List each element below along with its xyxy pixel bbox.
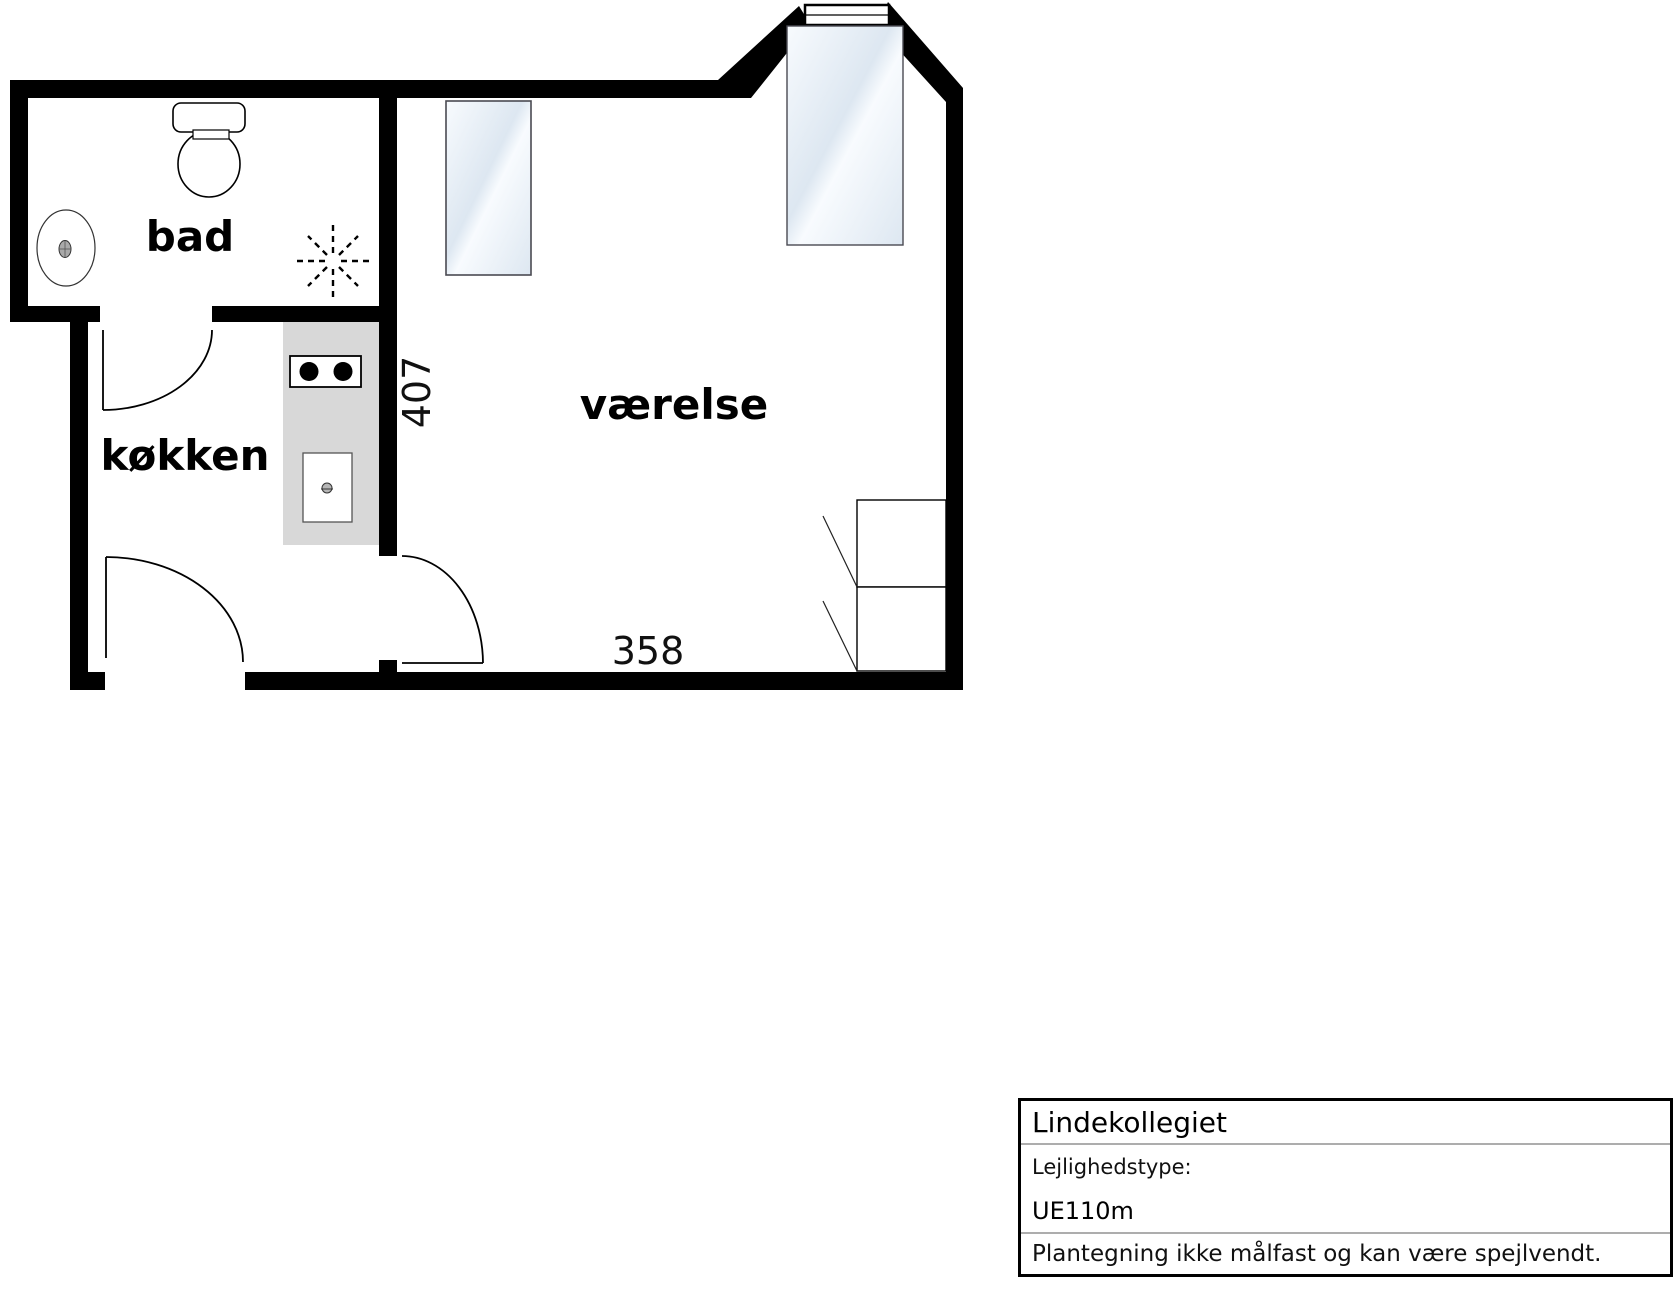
bath-sink-icon: [37, 210, 95, 286]
stove-icon: [290, 356, 361, 387]
wall-left-kitchen: [70, 322, 88, 690]
label-kitchen: køkken: [101, 431, 270, 480]
toilet-icon: [173, 103, 245, 197]
floorplan-drawing: bad køkken værelse 407 358: [0, 0, 1000, 720]
wall-bottom-stub: [70, 672, 105, 690]
door-room: [402, 556, 483, 663]
title-block-row-type: Lejlighedstype: UE110m: [1021, 1145, 1670, 1234]
wardrobe-icon: [823, 500, 946, 671]
building-name: Lindekollegiet: [1032, 1106, 1227, 1139]
door-entry: [106, 557, 243, 662]
dim-vertical: 407: [395, 356, 439, 429]
bed-icon: [787, 26, 903, 245]
floorplan-page: bad køkken værelse 407 358 Lindekollegie…: [0, 0, 1680, 1289]
dim-horizontal: 358: [612, 629, 685, 673]
door-bathroom: [103, 330, 212, 410]
apartment-type-value: UE110m: [1032, 1197, 1134, 1225]
wall-top: [10, 6, 810, 98]
wall-bath-bottom-left: [10, 306, 100, 322]
label-bathroom: bad: [146, 212, 234, 261]
glass-panel-icon: [446, 101, 531, 275]
wall-divider: [379, 80, 397, 556]
shower-icon: [297, 225, 369, 297]
kitchen-sink-icon: [303, 453, 352, 522]
wall-bath-bottom-right: [212, 306, 379, 322]
title-block-row-disclaimer: Plantegning ikke målfast og kan være spe…: [1021, 1234, 1670, 1274]
title-block: Lindekollegiet Lejlighedstype: UE110m Pl…: [1018, 1098, 1673, 1277]
wall-left-bath: [10, 80, 28, 322]
title-block-row-building: Lindekollegiet: [1021, 1101, 1670, 1145]
wall-bottom: [245, 672, 963, 690]
disclaimer-text: Plantegning ikke målfast og kan være spe…: [1032, 1241, 1602, 1267]
label-bedroom: værelse: [580, 380, 768, 429]
window-icon: [805, 5, 889, 25]
apartment-type-label: Lejlighedstype:: [1032, 1155, 1192, 1179]
